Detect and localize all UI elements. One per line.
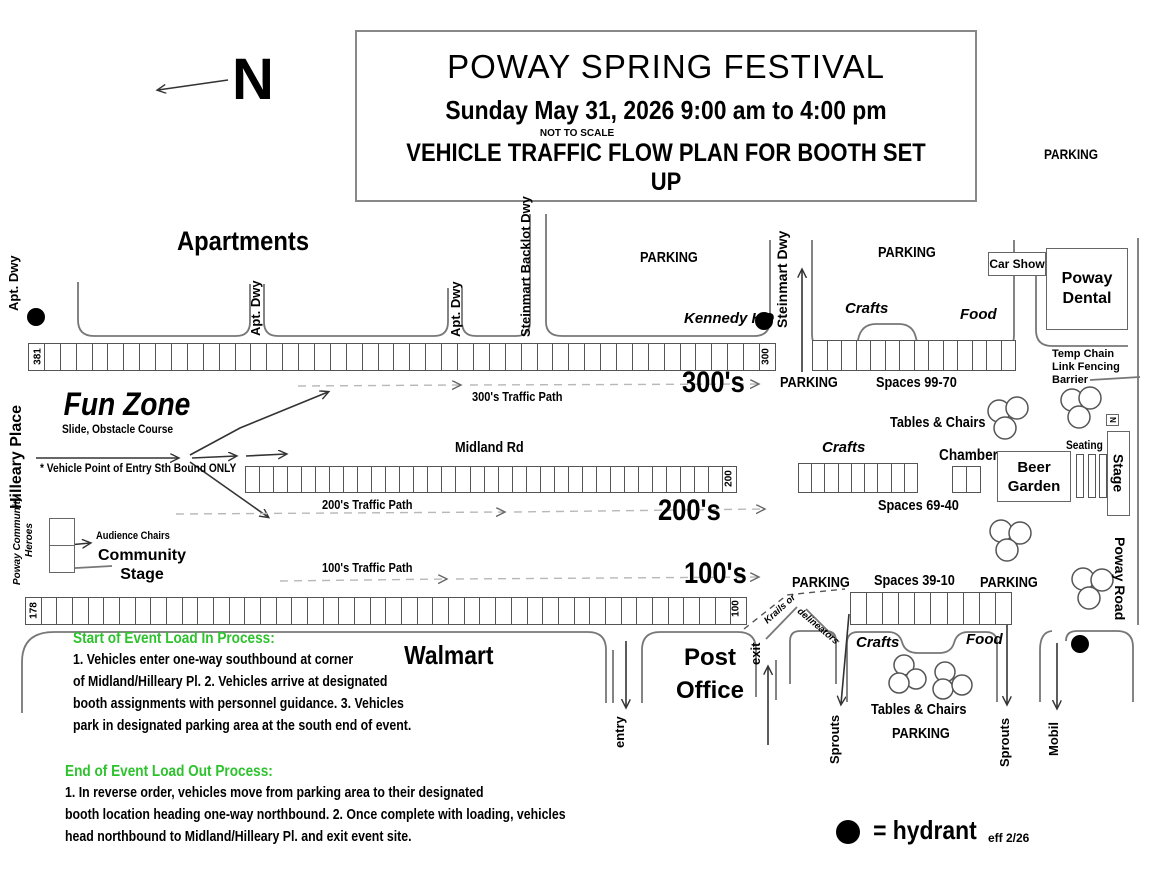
parking-label-bottom: PARKING xyxy=(892,725,950,742)
path-300s-a xyxy=(298,385,460,386)
seating-bar-3 xyxy=(1099,454,1107,498)
parking-row-99-70 xyxy=(812,340,1016,371)
fun-zone-subtitle: Slide, Obstacle Course xyxy=(62,422,173,436)
poway-community-heroes-label: Poway Community Heroes xyxy=(12,494,36,586)
tables-chairs-label-mid: Tables & Chairs xyxy=(890,414,985,431)
load-in-line-2: of Midland/Hilleary Pl. 2. Vehicles arri… xyxy=(73,674,387,690)
walmart-label: Walmart xyxy=(404,640,493,671)
compass-n: N xyxy=(232,46,274,113)
crafts-label-bottom: Crafts xyxy=(856,634,899,651)
booth-num-300: 300 xyxy=(761,342,772,372)
branch-200s-arrow-2 xyxy=(246,454,286,456)
audience-chairs-label: Audience Chairs xyxy=(96,530,170,542)
stage-n-marker-label: N xyxy=(1108,417,1117,423)
seating-bar-1 xyxy=(1076,454,1084,498)
parking-label-far-right: PARKING xyxy=(1044,146,1098,162)
parking-label-3910-left: PARKING xyxy=(792,574,850,591)
exit-label: exit xyxy=(748,637,763,671)
path-label-300s: 300's Traffic Path xyxy=(472,389,562,404)
community-stage-label: Community Stage xyxy=(92,546,192,584)
branch-200s-arrow-1 xyxy=(192,456,236,458)
car-show-box: Car Show xyxy=(988,252,1046,276)
apartments-label: Apartments xyxy=(177,226,309,257)
parking-row-39-10 xyxy=(850,592,1012,625)
booth-num-178: 178 xyxy=(29,596,40,626)
entry-label: entry xyxy=(612,712,627,752)
booth-row-100s xyxy=(25,597,747,625)
vehicle-entry-note: * Vehicle Point of Entry Sth Bound ONLY xyxy=(40,461,236,475)
load-in-line-1: 1. Vehicles enter one-way southbound at … xyxy=(73,652,353,668)
poway-dental-box: Poway Dental xyxy=(1046,248,1128,330)
seating-label: Seating xyxy=(1066,438,1103,452)
booth-num-100: 100 xyxy=(731,594,742,624)
load-in-line-3: booth assignments with personnel guidanc… xyxy=(73,696,404,712)
parking-label-top-right: PARKING xyxy=(878,244,936,261)
festival-map: POWAY SPRING FESTIVAL Sunday May 31, 202… xyxy=(0,0,1155,892)
scale-note: NOT TO SCALE xyxy=(482,128,672,139)
booth-num-381: 381 xyxy=(33,342,44,372)
crafts-label-mid: Crafts xyxy=(822,439,865,456)
load-out-heading: End of Event Load Out Process: xyxy=(65,763,273,781)
mobil-label: Mobil xyxy=(1046,712,1061,766)
path-100s-a xyxy=(280,579,446,581)
path-label-200s: 200's Traffic Path xyxy=(322,497,412,512)
food-label-top: Food xyxy=(960,306,997,323)
crafts-label-top: Crafts xyxy=(845,300,888,317)
big-label-100s: 100's xyxy=(684,557,747,591)
stage-label: Stage xyxy=(1111,454,1127,492)
sprouts-label-1: Sprouts xyxy=(827,710,842,768)
effective-date: eff 2/26 xyxy=(988,831,1029,845)
apt-dwy-label-3: Apt. Dwy xyxy=(448,281,463,337)
event-date: Sunday May 31, 2026 9:00 am to 4:00 pm xyxy=(394,95,938,126)
parking-label-3910-right: PARKING xyxy=(980,574,1038,591)
booth-row-300s xyxy=(28,343,776,371)
poway-road-label: Poway Road xyxy=(1112,535,1128,623)
kennedy-hq-label: Kennedy HQ xyxy=(684,310,774,327)
community-stage-structure xyxy=(49,518,75,573)
big-label-300s: 300's xyxy=(682,366,745,400)
stage-n-marker: N xyxy=(1106,414,1119,426)
food-label-bottom: Food xyxy=(966,631,1003,648)
chamber-label: Chamber xyxy=(939,447,998,465)
path-200s-a xyxy=(176,512,504,514)
steinmart-dwy-label: Steinmart Dwy xyxy=(774,226,790,332)
event-title: POWAY SPRING FESTIVAL xyxy=(357,48,975,86)
parking-label-300s: PARKING xyxy=(780,374,838,391)
seating-bar-2 xyxy=(1088,454,1096,498)
midland-rd-label: Midland Rd xyxy=(455,439,524,456)
path-label-100s: 100's Traffic Path xyxy=(322,560,412,575)
branch-300s-arrow xyxy=(190,392,328,455)
load-in-line-4: park in designated parking area at the s… xyxy=(73,718,411,734)
spaces-39-10-label: Spaces 39-10 xyxy=(874,572,955,589)
spaces-69-40-label: Spaces 69-40 xyxy=(878,497,959,514)
north-arrow xyxy=(158,80,228,90)
stage-box: Stage xyxy=(1107,431,1130,516)
title-box: POWAY SPRING FESTIVAL Sunday May 31, 202… xyxy=(355,30,977,202)
load-out-line-2: booth location heading one-way northboun… xyxy=(65,807,566,823)
hydrant-mobil xyxy=(1071,635,1089,653)
parking-label-top-center: PARKING xyxy=(640,249,698,266)
beer-garden-box: Beer Garden xyxy=(997,451,1071,502)
hydrant-legend-text: = hydrant xyxy=(873,815,977,846)
load-in-heading: Start of Event Load In Process: xyxy=(73,630,275,648)
parking-row-69-40 xyxy=(798,463,918,493)
plan-subtitle: VEHICLE TRAFFIC FLOW PLAN FOR BOOTH SET … xyxy=(394,139,938,197)
tables-chairs-label-bottom: Tables & Chairs xyxy=(871,701,966,718)
booth-row-200s xyxy=(245,466,737,493)
load-out-line-1: 1. In reverse order, vehicles move from … xyxy=(65,785,484,801)
booth-num-200: 200 xyxy=(724,464,735,494)
spaces-99-70-label: Spaces 99-70 xyxy=(876,374,957,391)
path-200s-b xyxy=(514,509,764,512)
hydrant-legend-dot xyxy=(836,820,860,844)
temp-chain-fence-label: Temp Chain Link Fencing Barrier xyxy=(1052,348,1120,387)
apt-dwy-label-2: Apt. Dwy xyxy=(248,279,263,337)
load-out-line-3: head northbound to Midland/Hilleary Pl. … xyxy=(65,829,412,845)
chamber-booths xyxy=(952,466,981,493)
sprouts-label-2: Sprouts xyxy=(997,712,1012,772)
fun-zone-title: Fun Zone xyxy=(64,386,191,423)
steinmart-backlot-dwy-label: Steinmart Backlot Dwy xyxy=(518,207,533,337)
big-label-200s: 200's xyxy=(658,494,721,528)
apt-dwy-label-1: Apt. Dwy xyxy=(6,253,21,313)
hydrant-apt-dwy xyxy=(27,308,45,326)
